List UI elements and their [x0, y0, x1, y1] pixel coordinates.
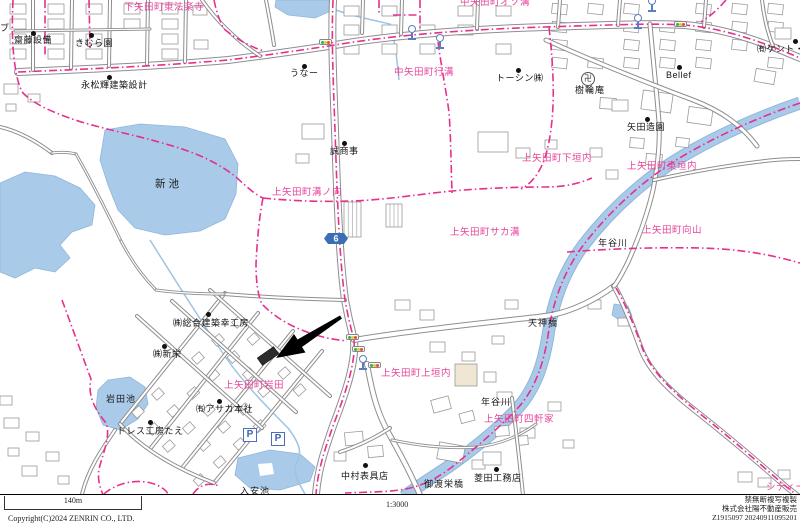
poi-label: トーシン㈱ [496, 74, 543, 83]
poi-label: うなー [290, 69, 319, 78]
area-label: 上矢田町四軒家 [484, 415, 554, 425]
traffic-light-icon [319, 39, 332, 45]
license-line: 株式会社陽不動産販売 [712, 504, 797, 513]
poi-label: 中村表具店 [341, 472, 389, 481]
route-number: 6 [333, 234, 338, 244]
fire-hydrant-icon [435, 34, 444, 49]
place-label: ブ [0, 24, 10, 33]
place-label: 年谷川 [598, 239, 628, 248]
poi-label: 永松輝建築設計 [81, 81, 148, 90]
poi-dot [793, 39, 798, 44]
poi-dot [148, 420, 153, 425]
poi-label: 齋藤設備 [14, 36, 52, 45]
scale-label: 140m [64, 496, 82, 505]
place-label: 岩田池 [106, 395, 136, 404]
poi-dot [217, 399, 222, 404]
labels-layer: 下矢田町東法楽寺中矢田町オソ溝中矢田町行溝上矢田町溝ノ向上矢田町下垣内上矢田町東… [0, 0, 800, 494]
poi-dot [107, 75, 112, 80]
poi-dot [342, 141, 347, 146]
poi-dot [31, 31, 36, 36]
map-footer: 140m 1:3000 Copyright(C)2024 ZENRIN CO.,… [0, 495, 800, 527]
poi-label: ㈲アサカ本社 [196, 405, 253, 414]
map-application: 下矢田町東法楽寺中矢田町オソ溝中矢田町行溝上矢田町溝ノ向上矢田町下垣内上矢田町東… [0, 0, 800, 527]
traffic-light-icon [368, 362, 381, 368]
copyright-text: Copyright(C)2024 ZENRIN CO., LTD. [8, 514, 134, 523]
fire-hydrant-icon [633, 14, 642, 29]
poi-dot [162, 344, 167, 349]
traffic-light-icon [346, 334, 359, 340]
poi-label: ドレス工房たえ [117, 427, 184, 436]
poi-dot [677, 65, 682, 70]
place-label: 入安池 [240, 487, 270, 495]
poi-dot [89, 33, 94, 38]
poi-label: ㈲ケント・ハ [757, 45, 800, 54]
poi-dot [494, 467, 499, 472]
parking-icon: P [243, 428, 257, 442]
area-label: 上矢田町上垣内 [381, 369, 451, 379]
poi-dot [302, 64, 307, 69]
area-label: 上矢田町東垣内 [627, 162, 697, 172]
poi-label: 誠商事 [330, 147, 359, 156]
area-label: 上矢田町向山 [642, 226, 702, 236]
area-label: 中矢田町オソ溝 [460, 0, 530, 8]
area-label: シティー [766, 483, 800, 493]
poi-label: 菱田工務店 [474, 474, 522, 483]
area-label: 下矢田町東法楽寺 [124, 3, 204, 13]
poi-dot [363, 463, 368, 468]
poi-dot [516, 68, 521, 73]
route-6-shield: 6 [323, 232, 349, 245]
map-canvas[interactable]: 下矢田町東法楽寺中矢田町オソ溝中矢田町行溝上矢田町溝ノ向上矢田町下垣内上矢田町東… [0, 0, 800, 495]
area-label: 上矢田町下垣内 [522, 154, 592, 164]
poi-label: ㈱総合建築幸工房 [173, 319, 249, 328]
fire-hydrant-icon [358, 355, 367, 370]
area-label: 上矢田町岩田 [224, 381, 284, 391]
place-label: 天神橋 [528, 319, 558, 328]
temple-icon: 卍 [581, 72, 595, 86]
area-label: 上矢田町溝ノ向 [272, 188, 342, 198]
poi-label: Bellef [666, 71, 692, 80]
license-line: Z1915097 20240911095201 [712, 513, 797, 522]
fire-hydrant-icon [647, 0, 656, 12]
license-block: 禁無断複写複製 株式会社陽不動産販売 Z1915097 202409110952… [712, 495, 797, 522]
area-label: 中矢田町行溝 [394, 68, 454, 78]
scale-ratio: 1:3000 [386, 500, 408, 509]
poi-label: ㈱新栄 [153, 350, 182, 359]
place-label: 樹輪庵 [575, 86, 605, 95]
poi-dot [206, 312, 211, 317]
traffic-light-icon [352, 346, 365, 352]
place-label: 新池 [155, 179, 182, 190]
license-line: 禁無断複写複製 [712, 495, 797, 504]
poi-dot [645, 117, 650, 122]
fire-hydrant-icon [407, 25, 416, 40]
poi-label: 矢田造園 [627, 123, 665, 132]
parking-icon: P [271, 432, 285, 446]
poi-label: きむら園 [75, 39, 113, 48]
traffic-light-icon [674, 21, 687, 27]
place-label: 年谷川 [481, 398, 511, 407]
place-label: 御渡栄橋 [424, 480, 464, 489]
area-label: 上矢田町サカ溝 [450, 228, 520, 238]
scale-bar: 140m [4, 496, 142, 510]
